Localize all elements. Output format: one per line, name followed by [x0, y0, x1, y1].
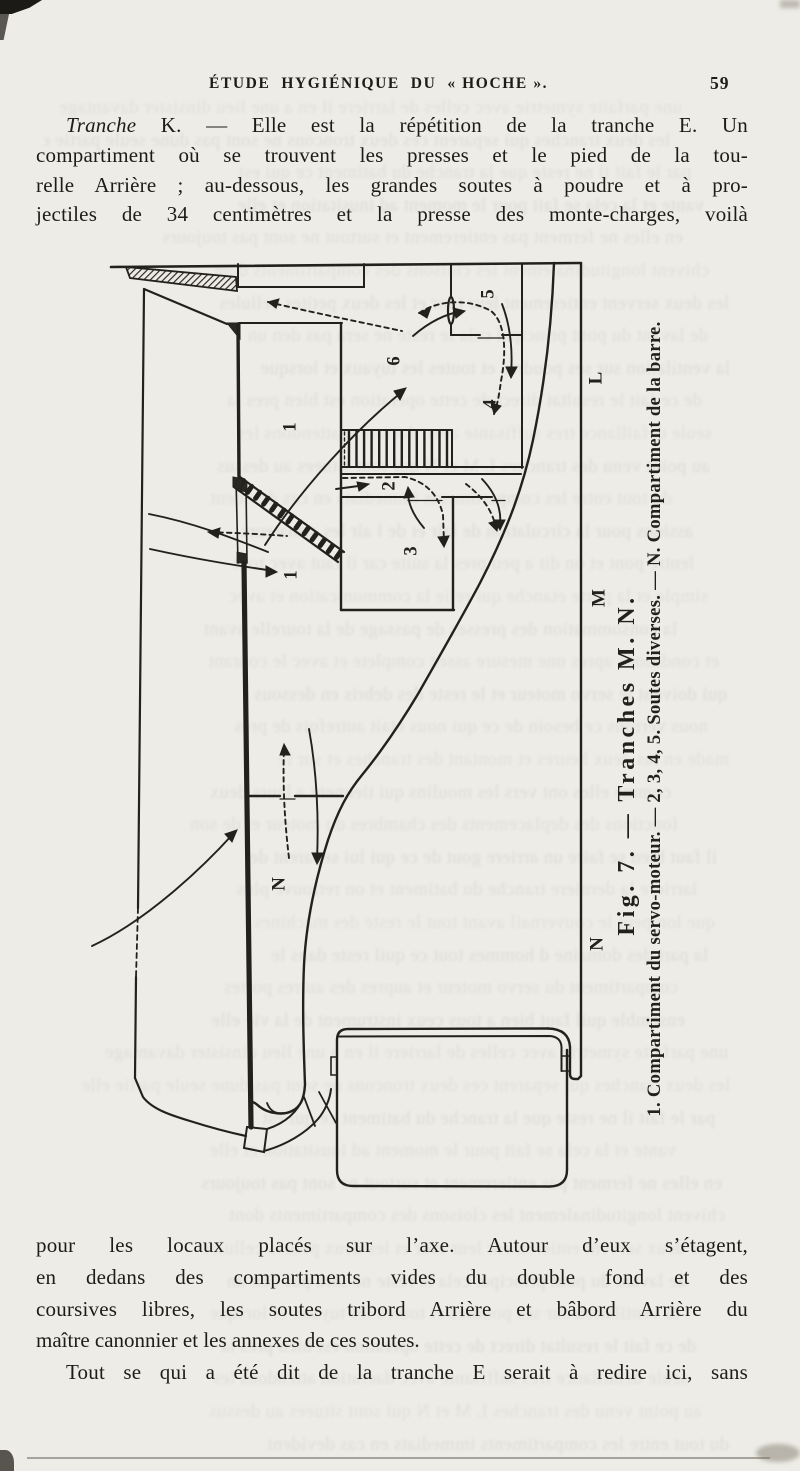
svg-text:L: L [585, 372, 606, 385]
svg-text:Fig. 7. — Tranches M. N.: Fig. 7. — Tranches M. N. [614, 594, 640, 935]
svg-text:5: 5 [478, 289, 498, 298]
svg-text:2: 2 [379, 481, 399, 490]
svg-text:1: 1 [281, 570, 301, 579]
svg-text:N: N [268, 877, 289, 891]
svg-text:M: M [588, 589, 609, 607]
svg-text:3: 3 [401, 546, 421, 555]
svg-text:N: N [586, 937, 607, 951]
svg-text:1: 1 [280, 422, 300, 431]
svg-text:1. Compartiment du servo-moteu: 1. Compartiment du servo-moteur. — 2, 3,… [644, 321, 665, 1116]
svg-text:4: 4 [480, 399, 500, 408]
svg-text:6: 6 [384, 356, 404, 365]
